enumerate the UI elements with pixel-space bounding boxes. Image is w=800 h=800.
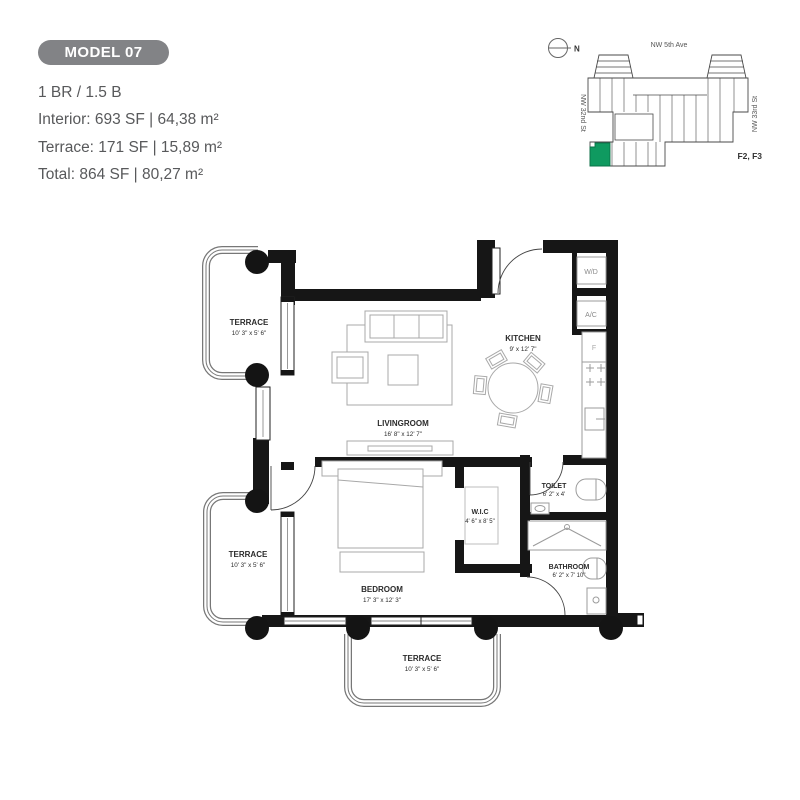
terrace-top-label: TERRACE bbox=[230, 318, 269, 327]
ac-label: A/C bbox=[585, 312, 597, 319]
terrace-left-railing bbox=[207, 496, 258, 622]
bedroom-door bbox=[271, 466, 315, 510]
building-footprint bbox=[588, 55, 748, 166]
street-left-label: NW 32nd St bbox=[579, 94, 586, 132]
dining-chair bbox=[473, 376, 487, 395]
toilet-label: TOILET bbox=[542, 483, 567, 490]
bottom-window-left bbox=[284, 617, 346, 625]
terrace-top-dims: 10' 3" x 5' 6" bbox=[232, 330, 267, 337]
bed bbox=[322, 461, 442, 548]
dining-table bbox=[488, 363, 538, 413]
dining-chair bbox=[538, 384, 553, 404]
livingroom-label: LIVINGROOM bbox=[377, 419, 429, 428]
bedroom-dims: 17' 3" x 12' 3" bbox=[363, 597, 401, 604]
dining-set bbox=[473, 350, 553, 428]
terrace-left-dims: 10' 3" x 5' 6" bbox=[231, 562, 266, 569]
wd-label: W/D bbox=[584, 269, 598, 276]
toilet-dims: 6' 2" x 4' bbox=[543, 492, 565, 498]
bathroom-door-arc bbox=[527, 577, 565, 615]
bathroom-dims: 6' 2" x 7' 10" bbox=[553, 573, 586, 579]
north-label: N bbox=[574, 45, 580, 54]
dining-chair bbox=[497, 413, 517, 428]
bottom-window-mid bbox=[371, 617, 472, 625]
kitchen-label: KITCHEN bbox=[505, 334, 541, 343]
terrace-bottom-dims: 10' 3" x 5' 6" bbox=[405, 666, 440, 673]
wall-end-cap bbox=[637, 615, 643, 625]
shower bbox=[528, 521, 606, 550]
entry-door-arc bbox=[498, 249, 542, 293]
floor-plan-drawing: N NW 5th Ave NW 32n bbox=[0, 0, 800, 800]
tv-console bbox=[347, 441, 453, 455]
site-key-plan: N NW 5th Ave NW 32n bbox=[549, 39, 763, 167]
vanity-sink bbox=[587, 588, 606, 614]
terrace-left-label: TERRACE bbox=[229, 550, 268, 559]
wic-dims: 4' 6" x 8' 5" bbox=[465, 519, 495, 525]
kitchen-dims: 9' x 12' 7" bbox=[509, 346, 536, 353]
living-terrace-door bbox=[281, 297, 294, 375]
livingroom-dims: 16' 8" x 12' 7" bbox=[384, 431, 422, 438]
toilet-door bbox=[530, 462, 563, 495]
powder-toilet bbox=[576, 479, 606, 500]
coffee-table bbox=[388, 355, 418, 385]
terrace-bottom-label: TERRACE bbox=[403, 654, 442, 663]
bench bbox=[340, 552, 424, 572]
armchair bbox=[332, 352, 368, 383]
sofa bbox=[365, 311, 447, 342]
brochure-page: MODEL 07 1 BR / 1.5 B Interior: 693 SF |… bbox=[0, 0, 800, 800]
floors-label: F2, F3 bbox=[737, 151, 762, 161]
fridge-label: F bbox=[592, 345, 596, 352]
bedroom-label: BEDROOM bbox=[361, 585, 403, 594]
street-top-label: NW 5th Ave bbox=[651, 42, 688, 49]
powder-sink bbox=[531, 503, 549, 514]
wic-label: W.I.C bbox=[471, 509, 488, 516]
west-window bbox=[256, 387, 270, 440]
street-right-label: NW 33rd St bbox=[752, 96, 759, 132]
bathroom-label: BATHROOM bbox=[549, 564, 590, 571]
north-arrow-icon bbox=[549, 39, 572, 58]
bedroom-terrace-door bbox=[281, 512, 294, 617]
